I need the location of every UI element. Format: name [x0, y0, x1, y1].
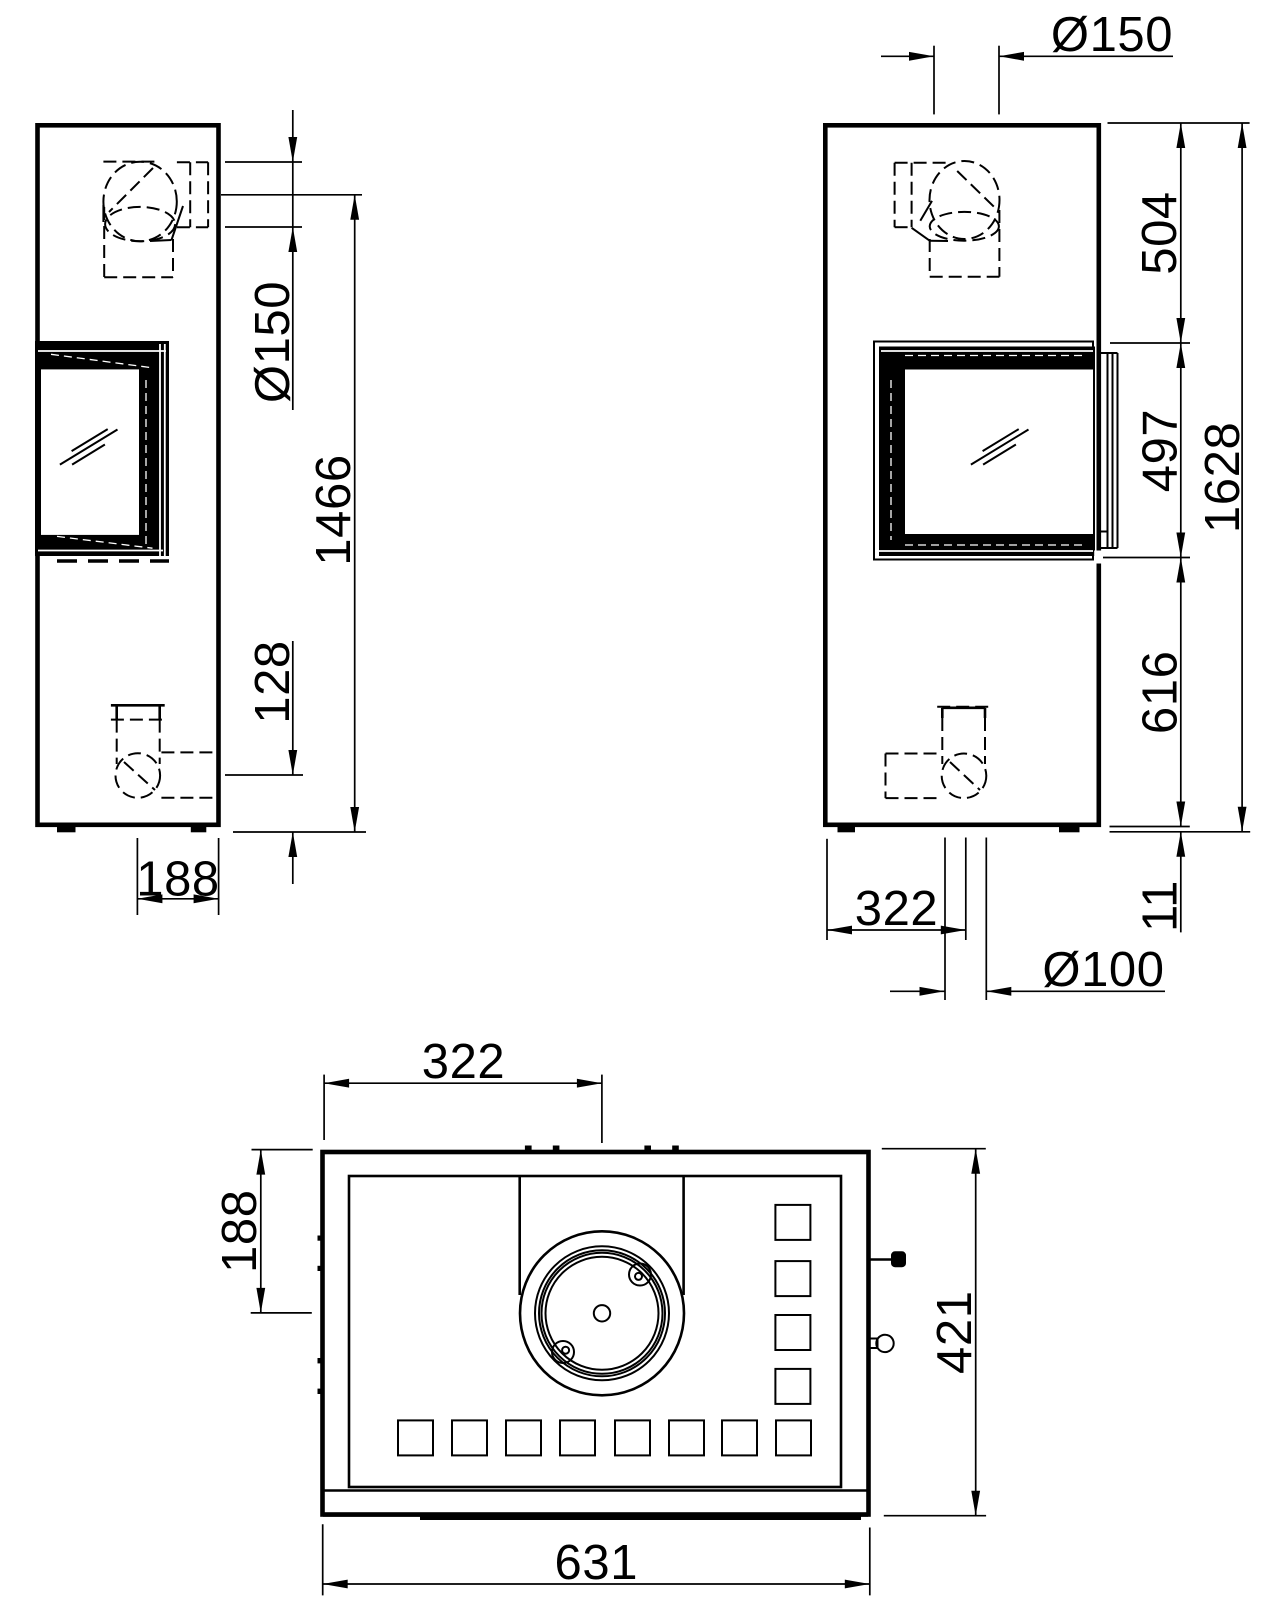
svg-text:11: 11	[1134, 880, 1188, 932]
svg-text:188: 188	[136, 852, 220, 906]
svg-text:322: 322	[855, 882, 939, 936]
svg-text:497: 497	[1134, 409, 1188, 493]
svg-text:Ø150: Ø150	[1051, 8, 1173, 62]
svg-text:322: 322	[422, 1035, 506, 1089]
svg-text:631: 631	[555, 1536, 639, 1590]
svg-text:Ø100: Ø100	[1042, 943, 1164, 997]
svg-text:504: 504	[1133, 191, 1187, 275]
svg-text:188: 188	[213, 1189, 267, 1273]
svg-text:421: 421	[928, 1290, 982, 1374]
svg-text:1628: 1628	[1196, 422, 1250, 533]
svg-text:Ø150: Ø150	[246, 281, 300, 403]
svg-text:128: 128	[246, 640, 300, 724]
svg-text:616: 616	[1134, 651, 1188, 735]
svg-text:1466: 1466	[307, 454, 361, 565]
